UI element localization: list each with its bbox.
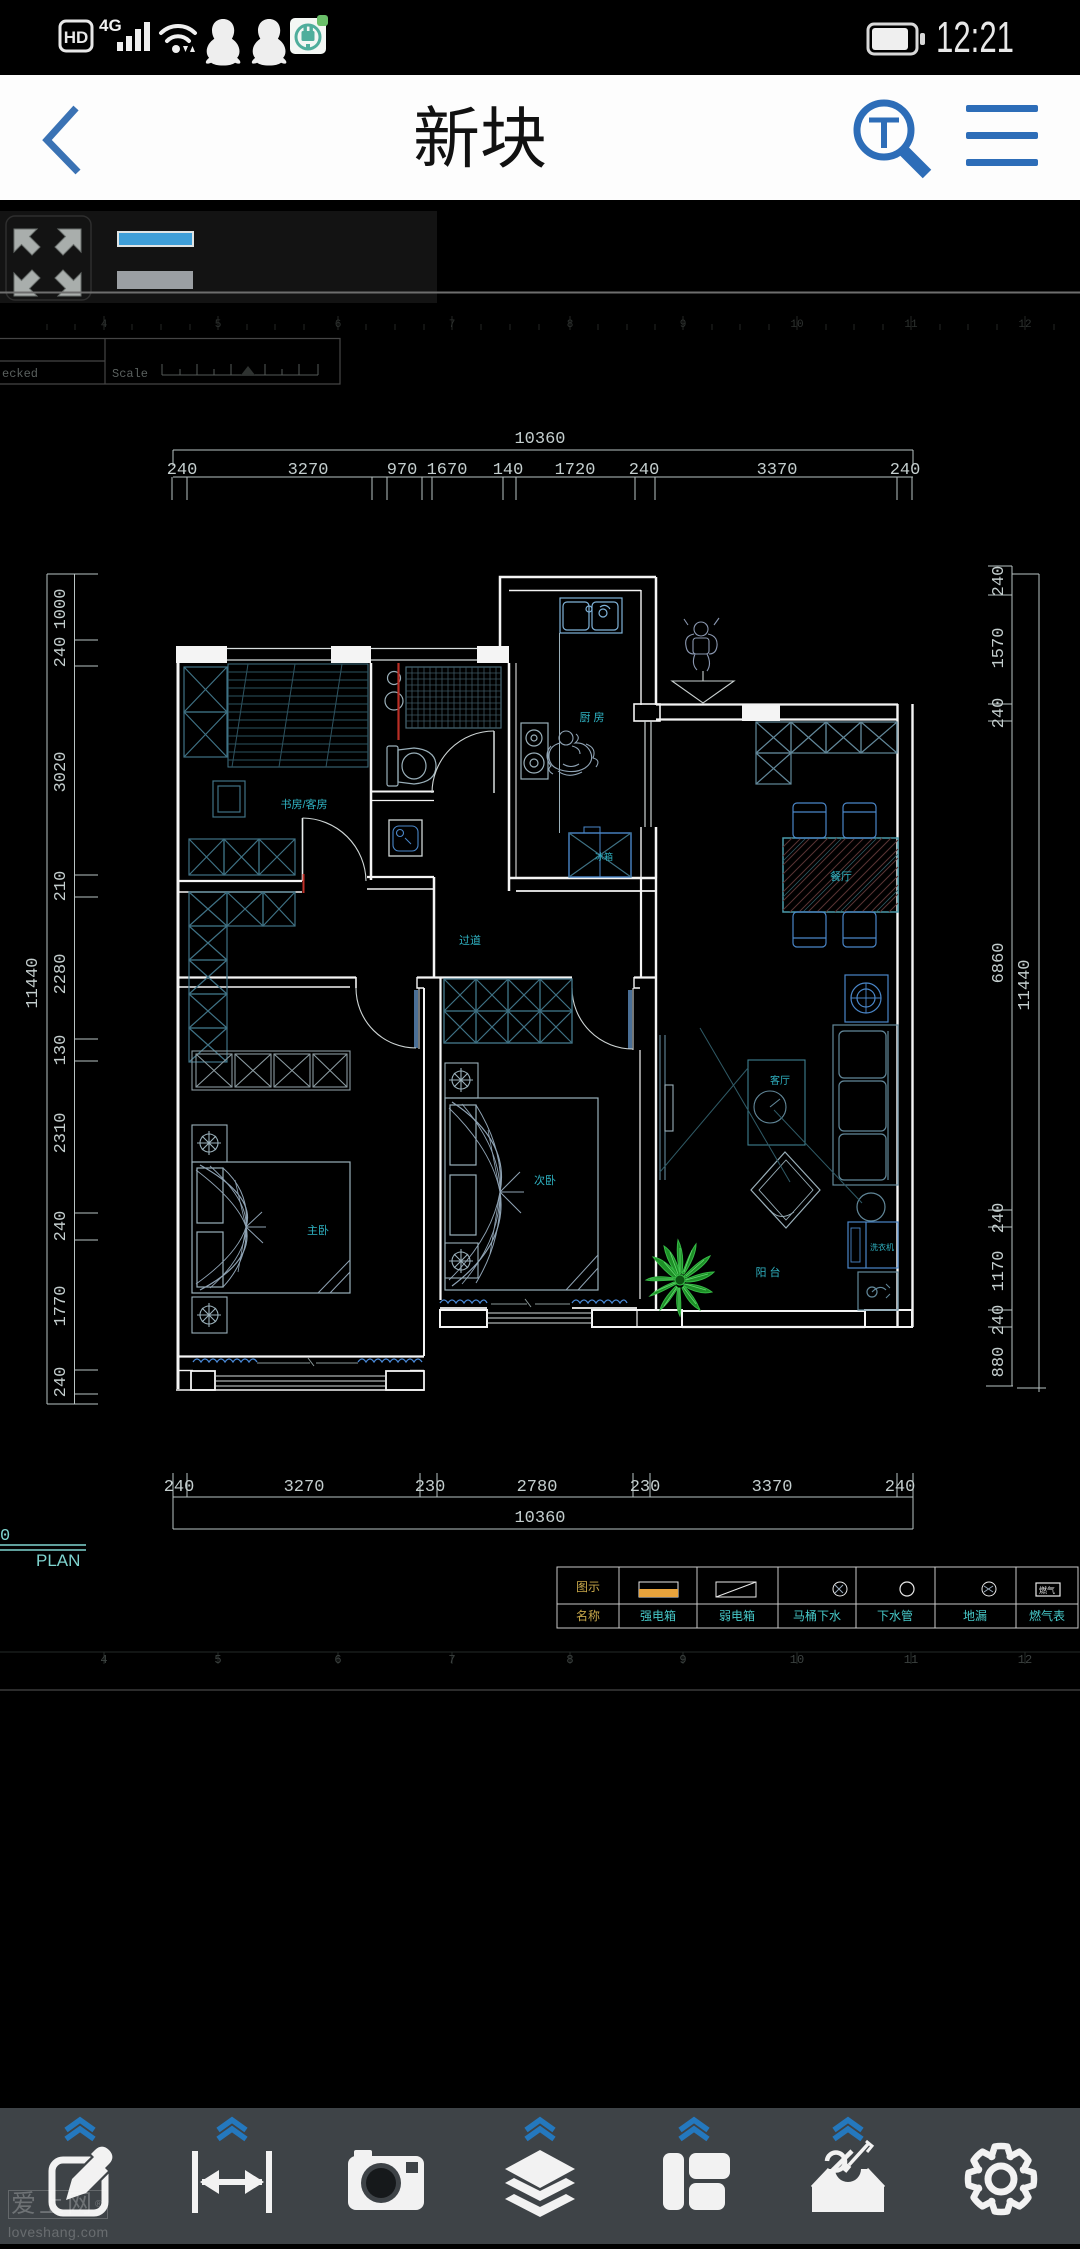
svg-text:12:21: 12:21 [936,13,1014,62]
svg-text:6: 6 [334,1653,341,1667]
svg-text:Scale: Scale [112,367,148,381]
svg-text:1770: 1770 [52,1286,71,1327]
svg-text:图示: 图示 [576,1580,600,1594]
svg-text:130: 130 [52,1035,71,1066]
svg-text:3270: 3270 [284,1478,325,1497]
svg-text:11: 11 [904,319,918,331]
svg-text:11: 11 [904,1653,918,1667]
svg-text:强电箱: 强电箱 [640,1608,676,1623]
svg-text:1670: 1670 [427,461,468,480]
svg-text:140: 140 [493,461,524,480]
svg-text:240: 240 [990,1203,1009,1234]
svg-text:马桶下水: 马桶下水 [793,1608,841,1623]
svg-text:2310: 2310 [52,1113,71,1154]
svg-text:240: 240 [52,1367,71,1398]
svg-text:10360: 10360 [514,430,565,449]
svg-text:2780: 2780 [517,1478,558,1497]
svg-text:240: 240 [885,1478,916,1497]
svg-text:下水管: 下水管 [877,1608,913,1623]
svg-text:PLAN: PLAN [36,1551,80,1570]
svg-text:1570: 1570 [990,628,1009,669]
svg-text:11440: 11440 [24,957,43,1008]
svg-text:10360: 10360 [514,1509,565,1528]
svg-text:地漏: 地漏 [963,1609,987,1623]
svg-text:8: 8 [567,319,574,331]
svg-text:240: 240 [629,461,660,480]
svg-text:10: 10 [790,319,803,331]
svg-text:240: 240 [164,1478,195,1497]
svg-text:3370: 3370 [752,1478,793,1497]
svg-text:3020: 3020 [52,752,71,793]
svg-text:燃气表: 燃气表 [1029,1608,1065,1623]
svg-text:餐厅: 餐厅 [830,869,852,883]
svg-text:2280: 2280 [52,954,71,995]
svg-text:970: 970 [387,461,418,480]
svg-text:240: 240 [52,637,71,668]
svg-text:230: 230 [415,1478,446,1497]
svg-text:5: 5 [215,319,222,331]
svg-text:9: 9 [679,1653,686,1667]
svg-text:4G: 4G [99,16,122,35]
svg-text:240: 240 [890,461,921,480]
svg-text:燃气: 燃气 [1039,1585,1055,1595]
svg-text:7: 7 [448,1653,455,1667]
svg-text:880: 880 [990,1347,1009,1378]
svg-text:名称: 名称 [576,1608,600,1623]
svg-text:冰箱: 冰箱 [595,851,613,862]
svg-text:HD: HD [64,28,89,47]
svg-text:6860: 6860 [990,943,1009,984]
svg-text:10: 10 [790,1653,804,1667]
svg-text:3270: 3270 [288,461,329,480]
svg-text:7: 7 [449,319,456,331]
svg-text:1000: 1000 [52,589,71,630]
svg-text:9: 9 [680,319,687,331]
svg-text:新块: 新块 [413,102,547,177]
svg-text:240: 240 [990,1305,1009,1336]
svg-text:12: 12 [1018,319,1031,331]
svg-text:1720: 1720 [555,461,596,480]
svg-text:弱电箱: 弱电箱 [719,1608,755,1623]
svg-text:3370: 3370 [757,461,798,480]
svg-text:主卧: 主卧 [307,1224,329,1237]
svg-text:12: 12 [1018,1653,1032,1667]
svg-text:0: 0 [0,1527,10,1546]
svg-text:1170: 1170 [990,1251,1009,1292]
svg-text:次卧: 次卧 [534,1173,556,1187]
svg-text:240: 240 [167,461,198,480]
svg-text:5: 5 [214,1653,221,1667]
svg-text:210: 210 [52,871,71,902]
svg-text:洗衣机: 洗衣机 [870,1242,894,1252]
svg-text:8: 8 [566,1653,573,1667]
svg-text:240: 240 [990,698,1009,729]
svg-text:书房/客房: 书房/客房 [280,797,327,811]
svg-text:6: 6 [335,319,342,331]
svg-text:240: 240 [52,1211,71,1242]
svg-text:ecked: ecked [2,367,38,381]
svg-text:4: 4 [101,319,108,331]
svg-text:过道: 过道 [459,933,481,947]
svg-text:230: 230 [630,1478,661,1497]
svg-text:240: 240 [990,566,1009,597]
svg-text:阳 台: 阳 台 [755,1265,780,1279]
svg-text:厨 房: 厨 房 [579,711,604,724]
svg-text:4: 4 [100,1653,107,1667]
svg-text:客厅: 客厅 [770,1074,790,1087]
svg-text:11440: 11440 [1016,959,1035,1010]
